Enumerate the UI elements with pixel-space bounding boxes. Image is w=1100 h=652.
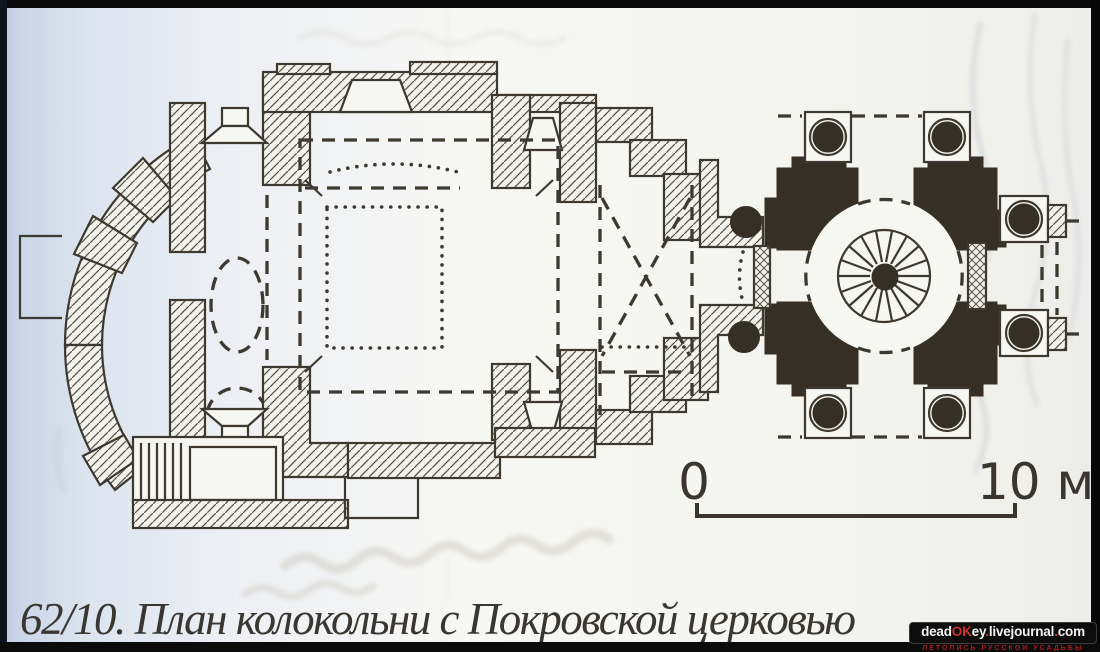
north-doorway: [340, 80, 412, 112]
frame-right: [1091, 0, 1100, 652]
refectory-south-wall-step: [596, 410, 652, 444]
watermark-tagline: летопись русской усадьбы: [909, 645, 1097, 652]
south-wall-band: [348, 443, 500, 478]
watermark-badge: deadOKey.livejournal.com: [909, 622, 1097, 644]
rotunda-hub: [872, 264, 898, 290]
west-doorway-lintel: [222, 108, 248, 126]
frame-top: [0, 0, 1100, 8]
south-wall-step: [495, 428, 595, 457]
column-west-north: [731, 207, 762, 238]
west-screen-wall: [754, 246, 770, 308]
scanned-book-page: 0 10 м 62/10. План колокольни с Покровск…: [0, 0, 1100, 652]
west-pylon-north: [170, 103, 205, 252]
apse-pier: [1048, 205, 1066, 237]
east-pylon-north-b: [560, 103, 596, 202]
scale-end-label: 10 м: [977, 453, 1094, 511]
east-screen-wall: [968, 243, 986, 309]
east-pylon-south-b: [560, 350, 596, 440]
refectory-north-wall-step: [596, 108, 652, 142]
refectory-north-wall-step: [630, 140, 686, 176]
apse-pier: [1048, 318, 1066, 350]
watermark-text: deadOKey.livejournal.com: [921, 624, 1085, 639]
scale-start-label: 0: [678, 453, 710, 511]
north-pilaster: [277, 64, 330, 74]
frame-left: [0, 0, 7, 652]
watermark: deadOKey.livejournal.com летопись русско…: [909, 622, 1097, 652]
architectural-plan-scan: 0 10 м 62/10. План колокольни с Покровск…: [0, 0, 1100, 652]
figure-caption: 62/10. План колокольни с Покровской церк…: [20, 594, 855, 644]
column-west-south: [729, 322, 760, 353]
west-pylon-south: [170, 300, 205, 440]
southwest-wall-band: [133, 500, 348, 528]
north-portal-pilaster: [410, 62, 497, 74]
